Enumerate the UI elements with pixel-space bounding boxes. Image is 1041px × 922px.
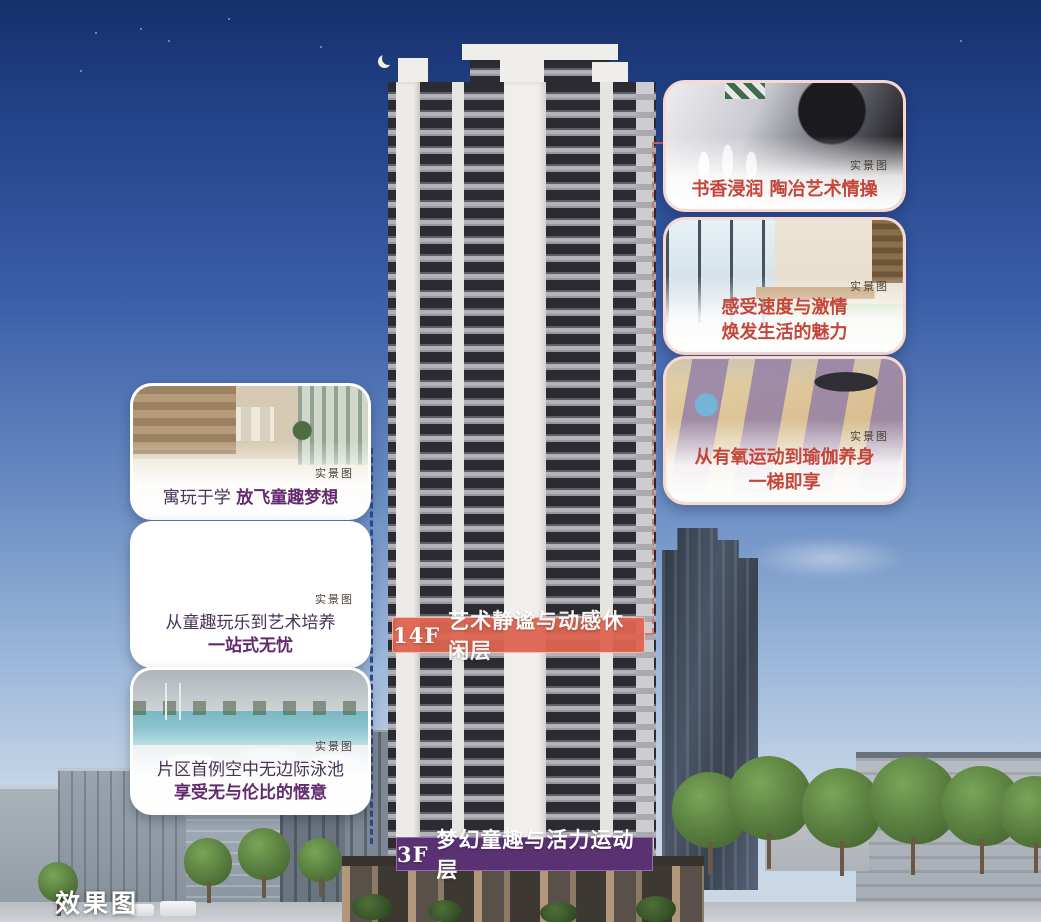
caption-regular: 寓玩于学 bbox=[163, 488, 236, 508]
star-icon bbox=[168, 40, 170, 42]
card-caption: 寓玩于学 放飞童趣梦想 bbox=[133, 487, 368, 510]
marketing-render-scene: 14F 艺术静谧与动感休闲层 3F 梦幻童趣与活力运动层 实景图 寓玩于学 放飞… bbox=[0, 0, 1041, 922]
floor-banner-14f: 14F 艺术静谧与动感休闲层 bbox=[392, 617, 645, 653]
floor-number: 3F bbox=[397, 842, 429, 867]
tower-pillar bbox=[396, 82, 420, 872]
caption-bold: 陶冶艺术情操 bbox=[770, 179, 878, 200]
shrub bbox=[636, 896, 676, 922]
tower-pillar bbox=[452, 82, 464, 872]
vehicle bbox=[160, 901, 196, 916]
star-icon bbox=[95, 32, 97, 34]
card-caption: 从童趣玩乐到艺术培养 一站式无忧 bbox=[133, 612, 368, 658]
tree bbox=[298, 838, 342, 897]
caption-bold: 一站式无忧 bbox=[133, 635, 368, 658]
card-caption: 从有氧运动到瑜伽养身 一梯即享 bbox=[666, 446, 903, 495]
crescent-moon-icon bbox=[382, 52, 395, 65]
caption-regular: 书香浸润 bbox=[691, 179, 769, 200]
card-caption: 书香浸润 陶冶艺术情操 bbox=[666, 178, 903, 202]
tree bbox=[238, 828, 290, 898]
card-sky-pool: 实景图 片区首例空中无边际泳池 享受无与伦比的惬意 bbox=[130, 667, 371, 815]
photo-tag: 实景图 bbox=[850, 428, 889, 444]
floor-title: 梦幻童趣与活力运动层 bbox=[437, 824, 652, 884]
tree bbox=[184, 838, 232, 903]
floor-title: 艺术静谧与动感休闲层 bbox=[448, 605, 644, 665]
star-icon bbox=[80, 70, 82, 72]
card-yoga: 实景图 从有氧运动到瑜伽养身 一梯即享 bbox=[663, 356, 906, 505]
cloud bbox=[748, 536, 908, 580]
caption-regular: 从有氧运动到瑜伽养身 bbox=[666, 446, 903, 470]
star-icon bbox=[960, 40, 962, 42]
tree bbox=[1000, 776, 1041, 873]
tower-core-cap bbox=[500, 44, 544, 84]
tree bbox=[728, 756, 812, 869]
card-caption: 片区首例空中无边际泳池 享受无与伦比的惬意 bbox=[133, 759, 368, 805]
tower-left-cap bbox=[398, 58, 428, 84]
card-gym: 实景图 感受速度与激情 焕发生活的魅力 bbox=[663, 217, 906, 355]
photo-tag: 实景图 bbox=[850, 157, 889, 173]
tower-pillar bbox=[600, 82, 613, 872]
floor-banner-3f: 3F 梦幻童趣与活力运动层 bbox=[396, 837, 653, 871]
star-icon bbox=[228, 18, 230, 20]
caption-bold: 一梯即享 bbox=[666, 471, 903, 495]
photo-tag: 实景图 bbox=[315, 465, 354, 481]
shrub bbox=[540, 902, 578, 922]
photo-tag: 实景图 bbox=[850, 278, 889, 294]
photo-tag: 实景图 bbox=[315, 591, 354, 607]
caption-bold: 享受无与伦比的惬意 bbox=[133, 782, 368, 805]
render-type-watermark: 效果图 bbox=[55, 884, 139, 920]
caption-bold: 放飞童趣梦想 bbox=[236, 488, 338, 508]
tower-right-cap bbox=[592, 62, 628, 84]
tower-pillar bbox=[504, 82, 546, 872]
caption-bold: 焕发生活的魅力 bbox=[666, 321, 903, 345]
star-icon bbox=[320, 46, 322, 48]
caption-regular: 感受速度与激情 bbox=[666, 296, 903, 320]
caption-regular: 从童趣玩乐到艺术培养 bbox=[133, 612, 368, 635]
card-kids-study: 实景图 寓玩于学 放飞童趣梦想 bbox=[130, 383, 371, 520]
right-connector-line bbox=[652, 142, 654, 634]
card-chess-art: 实景图 书香浸润 陶冶艺术情操 bbox=[663, 80, 906, 212]
floor-number: 14F bbox=[393, 623, 440, 648]
card-caption: 感受速度与激情 焕发生活的魅力 bbox=[666, 296, 903, 345]
star-icon bbox=[140, 28, 142, 30]
photo-tag: 实景图 bbox=[315, 738, 354, 754]
card-kids-art: 实景图 从童趣玩乐到艺术培养 一站式无忧 bbox=[130, 521, 371, 668]
shrub bbox=[352, 894, 392, 920]
main-tower bbox=[388, 82, 656, 872]
caption-regular: 片区首例空中无边际泳池 bbox=[133, 759, 368, 782]
shrub bbox=[428, 900, 462, 922]
